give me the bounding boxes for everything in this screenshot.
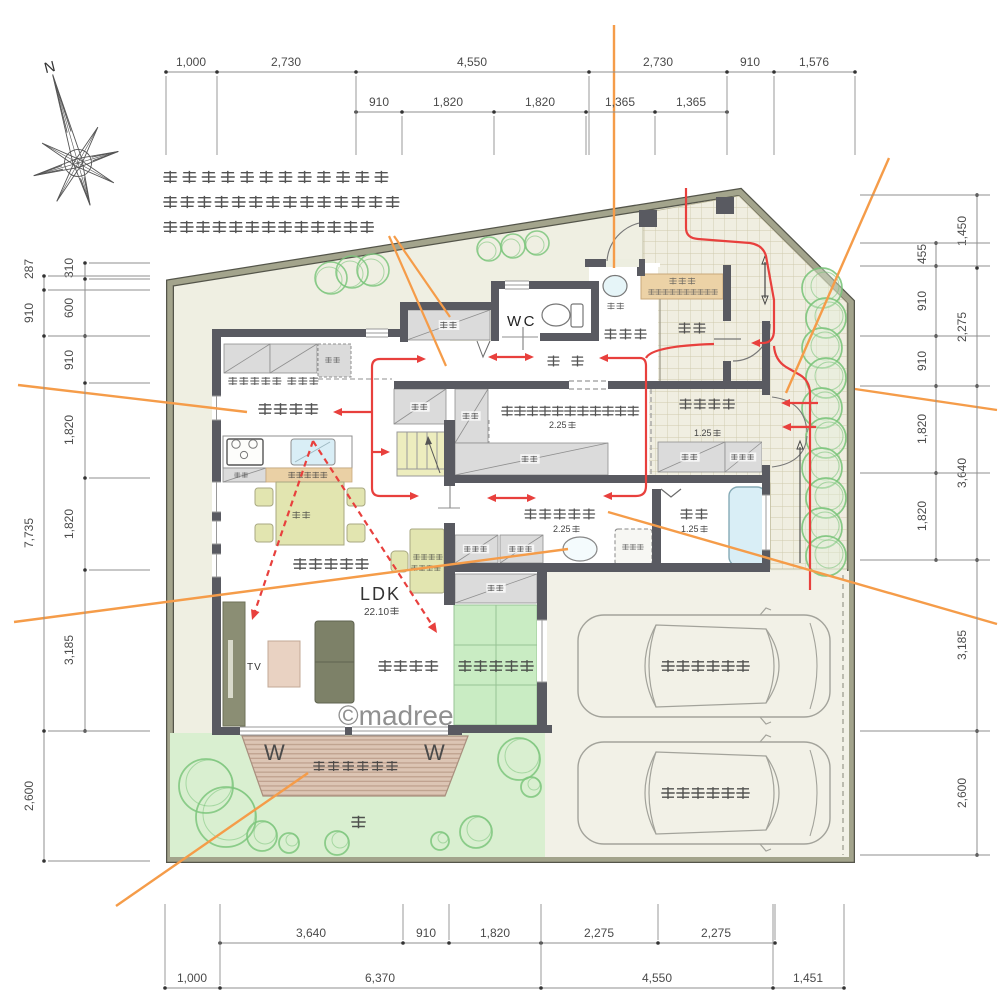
svg-text:1,365: 1,365 (605, 95, 635, 109)
svg-text:910: 910 (915, 291, 929, 311)
svg-text:2,275: 2,275 (584, 926, 614, 940)
svg-text:1,820: 1,820 (525, 95, 555, 109)
svg-text:2,275: 2,275 (955, 312, 969, 342)
svg-text:1,820: 1,820 (62, 509, 76, 539)
svg-text:1.25: 1.25 (694, 428, 712, 438)
svg-text:W: W (424, 740, 445, 765)
svg-text:287: 287 (22, 259, 36, 279)
svg-text:910: 910 (62, 350, 76, 370)
svg-text:1,820: 1,820 (915, 501, 929, 531)
svg-text:4,550: 4,550 (642, 971, 672, 985)
svg-text:1,820: 1,820 (915, 414, 929, 444)
svg-text:3,640: 3,640 (296, 926, 326, 940)
svg-text:910: 910 (915, 351, 929, 371)
svg-text:1,820: 1,820 (480, 926, 510, 940)
svg-text:1,450: 1,450 (955, 216, 969, 246)
svg-text:1,820: 1,820 (433, 95, 463, 109)
svg-text:910: 910 (369, 95, 389, 109)
svg-text:2.25: 2.25 (549, 420, 567, 430)
svg-text:1,365: 1,365 (676, 95, 706, 109)
svg-text:910: 910 (416, 926, 436, 940)
svg-text:2,275: 2,275 (701, 926, 731, 940)
svg-text:LDK: LDK (360, 584, 401, 604)
svg-text:910: 910 (740, 55, 760, 69)
svg-text:1.25: 1.25 (681, 524, 699, 534)
svg-text:2,730: 2,730 (643, 55, 673, 69)
svg-text:1,000: 1,000 (177, 971, 207, 985)
svg-text:WC: WC (507, 313, 537, 330)
svg-text:3,185: 3,185 (62, 635, 76, 665)
svg-text:1,000: 1,000 (176, 55, 206, 69)
svg-text:310: 310 (62, 258, 76, 278)
svg-text:2.25: 2.25 (553, 524, 571, 534)
svg-text:6,370: 6,370 (365, 971, 395, 985)
svg-text:2,600: 2,600 (955, 778, 969, 808)
svg-text:600: 600 (62, 298, 76, 318)
svg-text:22.10: 22.10 (364, 607, 389, 618)
svg-text:©madree: ©madree (338, 700, 454, 731)
svg-text:910: 910 (22, 303, 36, 323)
svg-text:TV: TV (247, 662, 262, 673)
svg-text:1,576: 1,576 (799, 55, 829, 69)
svg-text:W: W (264, 740, 285, 765)
svg-text:4,550: 4,550 (457, 55, 487, 69)
svg-text:2,730: 2,730 (271, 55, 301, 69)
svg-text:3,185: 3,185 (955, 630, 969, 660)
svg-text:7,735: 7,735 (22, 518, 36, 548)
svg-text:2,600: 2,600 (22, 781, 36, 811)
svg-text:1,451: 1,451 (793, 971, 823, 985)
svg-text:1,820: 1,820 (62, 415, 76, 445)
svg-text:455: 455 (915, 244, 929, 264)
